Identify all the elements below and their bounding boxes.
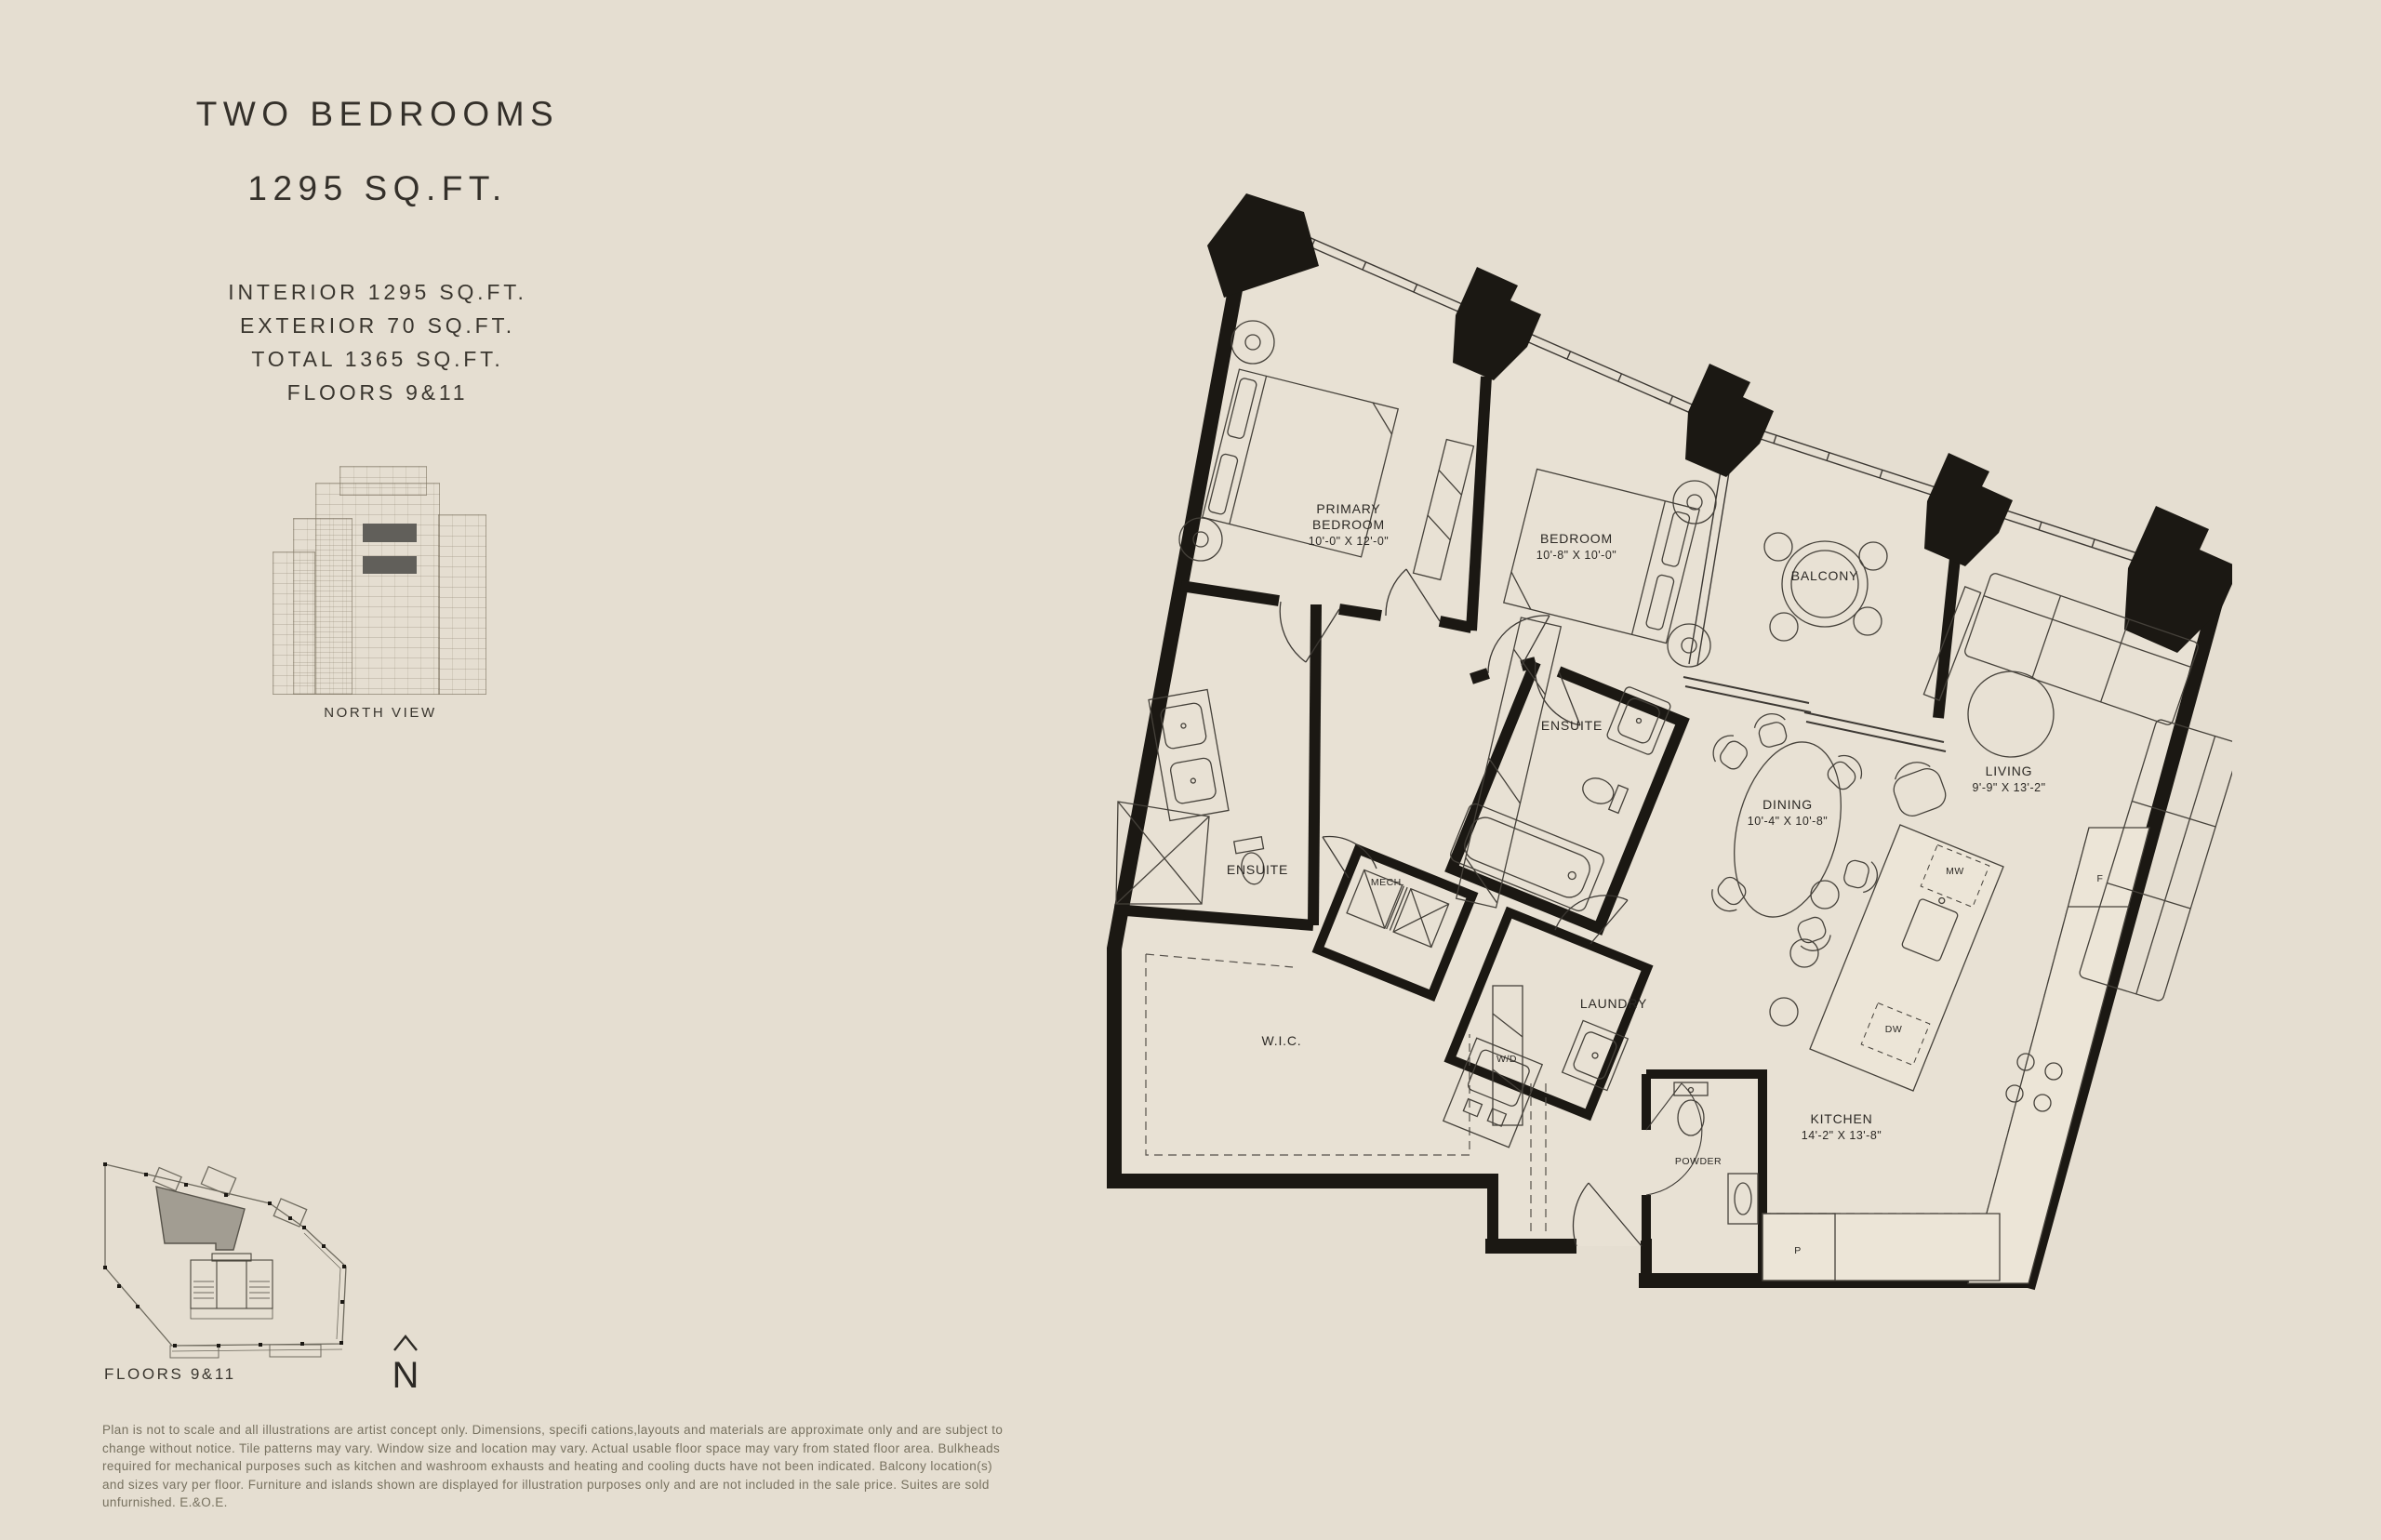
room-label-bedroom: BEDROOM [1540, 531, 1613, 546]
room-label-living: LIVING [1986, 763, 2033, 778]
room-label-wd: W/D [1496, 1054, 1517, 1065]
room-dims-living: 9'-9" X 13'-2" [1972, 781, 2045, 794]
keyplan-unit-highlight [156, 1187, 245, 1250]
room-label-balcony: BALCONY [1791, 568, 1859, 583]
keyplan-columns [103, 1162, 346, 1347]
room-dims-bedroom: 10'-8" X 10'-0" [1536, 549, 1616, 562]
floorplan-sheet: { "colors": { "background": "#e5ded1", "… [0, 0, 2381, 1540]
room-label-wic: W.I.C. [1262, 1033, 1302, 1048]
keyplan-wing-line [304, 1233, 340, 1339]
room-label-dining: DINING [1762, 797, 1813, 812]
stat-interior: INTERIOR 1295 SQ.FT. [102, 275, 653, 309]
highlighted-floor-11 [363, 524, 417, 542]
building-elevation [273, 462, 488, 693]
appliance-label-fridge: F [2097, 873, 2104, 884]
keyplan-tab-left [170, 1346, 219, 1358]
room-dims-primary: 10'-0" X 12'-0" [1309, 535, 1389, 548]
keyplan-caption: FLOORS 9&11 [104, 1365, 236, 1384]
elevation-right-wing [438, 514, 486, 695]
room-label-primary-line2: BEDROOM [1312, 517, 1385, 532]
area-stats: INTERIOR 1295 SQ.FT. EXTERIOR 70 SQ.FT. … [102, 275, 653, 409]
room-label-primary-line1: PRIMARY [1316, 501, 1380, 516]
stat-exterior: EXTERIOR 70 SQ.FT. [102, 309, 653, 342]
north-arrow-chevron [394, 1336, 417, 1350]
room-dims-kitchen: 14'-2" X 13'-8" [1802, 1129, 1882, 1142]
north-arrow-letter: N [392, 1355, 419, 1395]
room-label-mech: MECH. [1371, 877, 1404, 888]
keyplan-tab-right [270, 1345, 321, 1357]
keyplan-core [191, 1254, 273, 1319]
page-title: TWO BEDROOMS [140, 95, 616, 134]
appliance-label-mw: MW [1946, 866, 1964, 877]
appliance-label-dw: DW [1885, 1024, 1903, 1035]
page-subtitle: 1295 SQ.FT. [140, 169, 616, 208]
room-label-ensuite-second: ENSUITE [1541, 718, 1603, 733]
elevation-top-step [339, 466, 427, 496]
stat-floors: FLOORS 9&11 [102, 376, 653, 409]
unit-floor-plan: PRIMARY BEDROOM 10'-0" X 12'-0" BEDROOM … [1070, 186, 2232, 1302]
room-label-kitchen: KITCHEN [1810, 1111, 1872, 1126]
appliance-label-pantry: P [1794, 1245, 1802, 1256]
legal-disclaimer: Plan is not to scale and all illustratio… [102, 1421, 1097, 1512]
elevation-main-mass [315, 483, 440, 695]
room-label-ensuite-primary: ENSUITE [1227, 862, 1288, 877]
elevation-caption: NORTH VIEW [273, 705, 488, 721]
stat-total: TOTAL 1365 SQ.FT. [102, 342, 653, 376]
room-label-laundry: LAUNDRY [1580, 996, 1647, 1011]
room-label-powder: POWDER [1675, 1156, 1722, 1167]
highlighted-floor-9 [363, 556, 417, 574]
room-dims-dining: 10'-4" X 10'-8" [1748, 815, 1828, 828]
keyplan-drawing [93, 1153, 372, 1372]
north-arrow: N [379, 1328, 435, 1395]
